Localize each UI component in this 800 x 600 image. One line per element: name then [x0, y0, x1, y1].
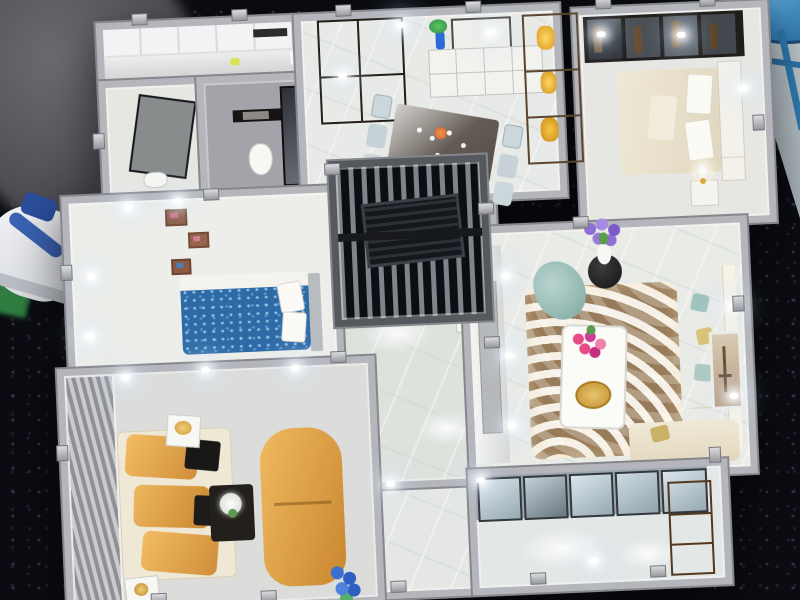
- led-light: [589, 558, 598, 564]
- wall-stud: [478, 202, 495, 215]
- washbasin: [143, 171, 168, 188]
- green-flowers: [429, 19, 448, 34]
- led-light: [338, 72, 347, 78]
- room-bedroom-main: [61, 185, 345, 385]
- shower-glass: [129, 94, 197, 179]
- led-light: [85, 334, 94, 340]
- room-living: [459, 215, 758, 485]
- wardrobe: [583, 10, 745, 63]
- led-light: [201, 367, 210, 373]
- led-light: [476, 477, 485, 483]
- room-study: [328, 154, 493, 327]
- wall-stud: [465, 1, 482, 14]
- room-family: [57, 356, 386, 600]
- wall-stud: [231, 9, 248, 22]
- apartment-model: [36, 0, 781, 600]
- blue-flowers: [331, 566, 345, 580]
- led-light: [596, 31, 605, 37]
- led-light: [386, 481, 395, 487]
- wall-stud: [261, 590, 278, 600]
- led-light: [173, 198, 182, 204]
- led-light: [677, 32, 686, 38]
- wall-stud: [595, 0, 612, 10]
- led-light: [121, 374, 130, 380]
- toilet: [248, 143, 273, 176]
- range-hood: [253, 28, 287, 37]
- wall-stud: [709, 447, 722, 464]
- room-balcony: [467, 458, 732, 595]
- photo-scene: [0, 0, 800, 600]
- flower-pedestal: [466, 222, 740, 234]
- wall-stud: [484, 336, 501, 349]
- wall-stud: [324, 163, 341, 176]
- feature-wall: [66, 376, 124, 600]
- wall-stud: [92, 133, 105, 150]
- bottles: [290, 52, 295, 64]
- wall-stud: [60, 265, 73, 282]
- wall-stud: [530, 572, 547, 585]
- wall-stud: [330, 351, 347, 364]
- wall-stud: [732, 295, 745, 312]
- led-light: [87, 274, 96, 280]
- sponge: [230, 58, 239, 65]
- wall-stud: [151, 593, 168, 600]
- blue-vase: [435, 31, 445, 49]
- wall-stud: [335, 4, 352, 17]
- led-light: [739, 85, 748, 91]
- blue-bed: [68, 192, 330, 203]
- wall-stud: [56, 445, 69, 462]
- wall-stud: [699, 0, 716, 7]
- led-light: [124, 204, 133, 210]
- wall-stud: [390, 580, 407, 593]
- gold-chaise: [259, 426, 348, 587]
- wall-stud: [573, 216, 590, 229]
- wall-shelf-frame: [171, 258, 192, 275]
- wall-picture: [709, 331, 744, 410]
- dark-coffee-table: [209, 484, 255, 542]
- towel: [243, 111, 269, 120]
- wall-stud: [752, 114, 765, 131]
- wall-stud: [203, 188, 220, 201]
- side-table: [166, 414, 202, 448]
- wood-cabinet: [667, 480, 715, 576]
- wall-stud: [650, 565, 667, 578]
- display-shelf: [522, 12, 584, 164]
- led-light: [396, 22, 405, 28]
- wall-shelf-frame: [188, 232, 210, 249]
- led-light: [291, 365, 300, 371]
- wall-shelf-frame: [165, 209, 188, 227]
- wall-stud: [131, 13, 148, 26]
- led-light: [486, 30, 495, 36]
